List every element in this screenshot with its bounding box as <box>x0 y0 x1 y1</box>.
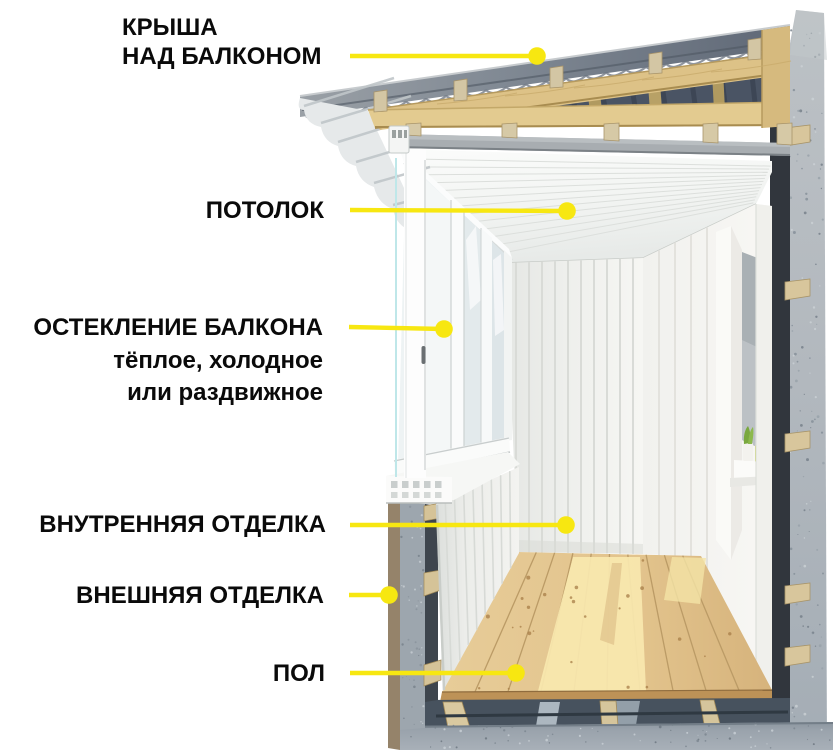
svg-text:ВНЕШНЯЯ ОТДЕЛКА: ВНЕШНЯЯ ОТДЕЛКА <box>76 582 324 609</box>
svg-text:ВНУТРЕННЯЯ ОТДЕЛКА: ВНУТРЕННЯЯ ОТДЕЛКА <box>39 511 326 538</box>
svg-text:или раздвижное: или раздвижное <box>127 379 323 406</box>
svg-text:тёплое, холодное: тёплое, холодное <box>113 347 323 374</box>
svg-text:НАД БАЛКОНОМ: НАД БАЛКОНОМ <box>122 43 321 70</box>
svg-text:КРЫША: КРЫША <box>122 14 218 41</box>
svg-text:ПОТОЛОК: ПОТОЛОК <box>206 197 325 224</box>
svg-text:ПОЛ: ПОЛ <box>273 660 325 687</box>
svg-text:ОСТЕКЛЕНИЕ БАЛКОНА: ОСТЕКЛЕНИЕ БАЛКОНА <box>33 314 323 341</box>
